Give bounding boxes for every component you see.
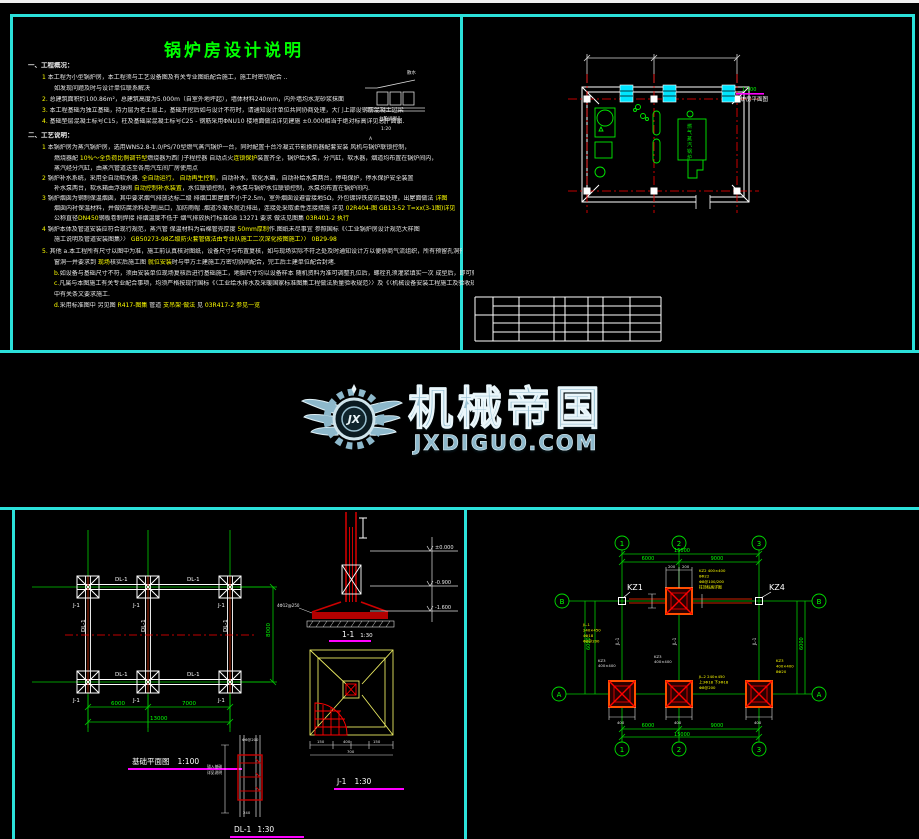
white-col-tags: KZ3400×400 KZ3400×400: [598, 654, 672, 668]
svg-text:JL-1: JL-1: [615, 637, 620, 646]
svg-text:J-1: J-1: [217, 603, 225, 609]
dim-13000: 13000: [150, 716, 168, 722]
vertical-beam-tags: JL-1 JL-1 JL-1: [615, 637, 757, 646]
foundation-panel: 6000 7000 13000 8000 DL-1DL-1 DL-1DL-1 D…: [15, 510, 464, 839]
annotation-jl1: JL-1240×4504Φ18Φ8@200: [582, 622, 601, 644]
notes-line: 中有关条文要求施工.: [54, 291, 110, 298]
dim-6000: 6000: [111, 701, 125, 707]
svg-text:150: 150: [373, 739, 381, 744]
beam-centerlines: [65, 576, 255, 693]
svg-text:DL-1: DL-1: [81, 619, 87, 632]
dim-seg2-top: 9000: [711, 556, 724, 562]
rebar-note: 4Φ12@250: [277, 603, 300, 608]
svg-text:J-1: J-1: [72, 698, 80, 704]
elev-900: -0.900: [435, 580, 451, 586]
anchor-note-2: 详见说明: [207, 770, 222, 775]
svg-text:3: 3: [757, 540, 761, 548]
svg-text:柱顶标高详图: 柱顶标高详图: [699, 585, 722, 590]
kz1-leader: [623, 592, 630, 598]
column-plan: 123 123 BB AA 15000 6000 9000 6000 9000 …: [470, 510, 919, 839]
svg-text:DL-1: DL-1: [187, 672, 200, 678]
svg-text:200: 200: [668, 564, 676, 569]
logo-emblem: JX: [300, 376, 404, 464]
svg-text:2: 2: [677, 540, 681, 548]
annotation-jl2: JL-2 240×450上3Φ18 下3Φ18Φ8@200: [698, 674, 729, 690]
svg-text:8Φ20: 8Φ20: [776, 669, 787, 674]
svg-text:A: A: [817, 691, 822, 699]
beam-caption-underline: [230, 836, 304, 838]
notes-line: 2. 总建筑面积约100.86m²，总建筑高度为5.000m（自室外地坪起），墙…: [42, 96, 344, 103]
grid-bubbles: 123 123 BB AA: [552, 536, 826, 756]
section-caption-underline: [329, 640, 371, 642]
logo-domain-text: JXDIGUO.COM: [413, 431, 598, 455]
notes-line: 3 锅炉烟囱为钢制保温烟囱，其中要求烟气排放达标二级 排烟口距屋面不小于2.5m…: [42, 195, 447, 202]
svg-text:蒸: 蒸: [687, 135, 692, 142]
elev-1600: -1.600: [435, 605, 451, 611]
dim-seg1-top: 6000: [642, 556, 655, 562]
footing-plan-j1: 150400150 700 J-11:30: [310, 650, 404, 790]
svg-text:Φ8@200: Φ8@200: [699, 685, 716, 690]
svg-text:J-1: J-1: [217, 698, 225, 704]
svg-text:JL-1: JL-1: [582, 622, 591, 627]
grid-axes: [566, 550, 812, 742]
svg-text:DL-1: DL-1: [187, 577, 200, 583]
svg-text:400×400: 400×400: [776, 664, 794, 669]
svg-text:400: 400: [617, 720, 625, 725]
frame-columns: [609, 588, 772, 707]
inset-mark: A: [369, 136, 373, 142]
footing-columns: [77, 576, 241, 693]
svg-text:A: A: [557, 691, 562, 699]
notes-line: 2 锅炉补水系统，采用全自动软水器. 全自动运行， 自动再生控制，自动补水，软化…: [42, 175, 414, 182]
notes-line: 公称直径DN450钢板卷制焊接 排烟温度不低于 烟气排放执行标准GB 13271…: [54, 215, 349, 222]
svg-text:Φ8@200: Φ8@200: [583, 639, 600, 644]
notes-section-heading: 二、工艺说明：: [28, 132, 74, 139]
notes-line: 窗洞一并要求到 现场核实后施工图 就位安装时与甲方土建施工方密切协同配合，完工后…: [54, 259, 336, 266]
dim-8000: 8000: [266, 623, 272, 637]
kz4-label: KZ4: [769, 583, 785, 592]
svg-text:Φ8@100/200: Φ8@100/200: [699, 579, 725, 584]
dim-vert-right: 6000: [799, 637, 805, 650]
svg-text:上3Φ18 下3Φ18: 上3Φ18 下3Φ18: [699, 680, 729, 685]
plan-label-underline: [736, 93, 764, 95]
svg-text:400: 400: [754, 720, 762, 725]
beam-caption: DL-11:30: [234, 825, 274, 834]
notes-line: 施工说明及管道安装图集〉〉 GB50273-98乙级防火套管做法由专业队施工二次…: [54, 236, 337, 243]
svg-text:J-1: J-1: [72, 603, 80, 609]
plan-dimension-lines: [584, 54, 740, 83]
annotation-kz3: KZ3400×4008Φ20: [776, 658, 794, 674]
svg-text:气: 气: [687, 129, 692, 136]
notes-line: 蒸汽经分汽缸，由蒸汽管道送至各用汽车间厂房使用点: [54, 165, 198, 172]
svg-text:燃: 燃: [687, 123, 692, 130]
svg-text:700: 700: [347, 749, 355, 754]
section-1-1: 4Φ12@250 ±0.000 -0.900 -1.600 1-11:30: [277, 512, 458, 642]
notes-line: b.如设备与基础尺寸不符，须由安装单位现场复核后进行基础施工，地脚尺寸均以设备样…: [54, 270, 474, 277]
anchor-note-1: 锚入基础: [207, 764, 222, 769]
window-symbols: [620, 85, 735, 102]
notes-line: 3. 本工程基础为独立基础，持力层为老土层上，基础开挖后如与设计不符时，请通知设…: [42, 107, 404, 114]
svg-text:1: 1: [620, 540, 624, 548]
top-strip: [0, 0, 919, 3]
svg-text:1: 1: [620, 746, 624, 754]
svg-text:DL-1: DL-1: [223, 619, 229, 632]
beam-detail: Φ6@200 锚入基础 详见说明 240 DL-11:30: [207, 735, 304, 838]
dim-7000: 7000: [182, 701, 196, 707]
svg-text:400: 400: [343, 739, 351, 744]
svg-text:J-1: J-1: [132, 603, 140, 609]
inset-caption: 台阶详图: [379, 115, 397, 122]
spec-table: [475, 297, 661, 341]
notes-line: 1 本工程为小型锅炉房，本工程须与工艺设备图及有关专业图纸配合施工，施工时密切配…: [42, 74, 287, 81]
svg-text:4Φ18: 4Φ18: [583, 633, 594, 638]
svg-text:JL-1: JL-1: [752, 637, 757, 646]
dim-total-top: 15000: [674, 548, 690, 554]
svg-text:400: 400: [674, 720, 682, 725]
inset-note: 散水: [407, 69, 416, 76]
svg-text:8Φ22: 8Φ22: [699, 574, 710, 579]
logo-monogram: JX: [346, 413, 361, 426]
plan-title-label: 锅炉房平面图: [735, 95, 769, 103]
svg-text:B: B: [560, 598, 565, 606]
logo-brand-text: 机械帝国: [408, 385, 604, 433]
svg-text:JL-2 240×450: JL-2 240×450: [698, 674, 725, 679]
notes-line: 5. 其他 a.本工程所有尺寸以图中为准，施工前认真核对图纸，设备尺寸与布置复核…: [42, 248, 462, 255]
notes-line: 烟囱内衬保温材料，并做防腐涂料处理|出口，加防雨帽 .烟道冷凝水就近排出，连接处…: [54, 205, 455, 212]
svg-text:JL-1: JL-1: [672, 637, 677, 646]
svg-text:炉: 炉: [687, 154, 692, 161]
kz4-leader: [761, 592, 771, 598]
svg-text:400×400: 400×400: [598, 663, 616, 668]
inset-detail-drawing: 散水 台阶详图 1:20 A: [355, 58, 465, 148]
svg-text:汽: 汽: [687, 142, 692, 149]
notes-section-heading: 一、工程概况：: [28, 62, 74, 69]
notes-line: 如发现问题及时与设计单位联系解决: [54, 85, 150, 92]
foundation-caption: 基础平面图1:100: [132, 756, 199, 766]
notes-line: 4. 基础垫层混凝土标号C15，柱及基础梁混凝土标号C25 - 钢筋采用ΦNU1…: [42, 118, 404, 125]
section-caption: 1-11:30: [342, 630, 373, 639]
kz1-label: KZ1: [627, 583, 643, 592]
footing-caption: J-11:30: [336, 777, 372, 786]
cad-sheet: 锅炉房设计说明 一、工程概况：1 本工程为小型锅炉房，本工程须与工艺设备图及有关…: [0, 0, 919, 839]
foundation-axes: [32, 530, 277, 732]
plan-walls: [582, 87, 749, 202]
dim-seg1-bot: 6000: [642, 723, 655, 729]
svg-text:B: B: [817, 598, 822, 606]
dim-seg2-bot: 9000: [711, 723, 724, 729]
notes-line: c.凡属与本图施工有关专业配合事项，均须严格按现行国标《〈工业给水排水及采暖国家…: [54, 280, 474, 287]
svg-text:150: 150: [317, 739, 325, 744]
notes-line: 补水泵两台，软水箱由浮球阀 自动控制补水装置，水位联锁控制，补水泵与锅炉水位联锁…: [54, 185, 370, 192]
elev-0: ±0.000: [435, 545, 454, 551]
footing-caption-underline: [334, 788, 404, 790]
notes-line: d.采用标准图中 另见图 R417-图集 管道 支吊架·做法 见 03R417-…: [54, 302, 260, 309]
svg-text:240×450: 240×450: [583, 628, 601, 633]
cursor-ibeam: [359, 518, 367, 538]
stirrup-note: Φ6@200: [242, 737, 259, 742]
svg-text:2: 2: [677, 746, 681, 754]
svg-text:200: 200: [682, 564, 690, 569]
svg-text:KZ3: KZ3: [776, 658, 784, 663]
notes-line: 燃烧器配 10%～全负荷比例调节型燃烧器为西门子程控器 自动点火连锁保护装置齐全…: [54, 155, 437, 162]
plan-scale-label: 1:100: [742, 87, 756, 93]
boiler-label: 燃气蒸汽锅炉: [687, 123, 692, 161]
notes-line: 4 锅炉本体及管道安装应符合现行规范，蒸汽管 保温材料为岩棉管壳厚度 50mm厚…: [42, 226, 420, 233]
svg-text:J-1: J-1: [132, 698, 140, 704]
svg-text:DL-1: DL-1: [115, 672, 128, 678]
inset-scale: 1:20: [381, 126, 391, 132]
beam-width: 240: [243, 810, 251, 815]
svg-text:400×400: 400×400: [654, 659, 672, 664]
design-notes-panel: 锅炉房设计说明 一、工程概况：1 本工程为小型锅炉房，本工程须与工艺设备图及有关…: [10, 14, 458, 352]
annotation-kz2: KZ2 400×4008Φ22Φ8@100/200柱顶标高详图: [699, 568, 726, 590]
svg-text:KZ2 400×400: KZ2 400×400: [699, 568, 726, 573]
frame-divider-bottom: [464, 507, 467, 839]
dim-total-bot: 15000: [674, 732, 690, 738]
floor-plan: 燃气蒸汽锅炉 1:100 锅炉房平面图: [463, 17, 915, 350]
svg-text:锅: 锅: [687, 148, 692, 155]
svg-text:DL-1: DL-1: [141, 619, 147, 632]
door-opening: [696, 195, 710, 205]
watermark-logo: JX 机械帝国 JXDIGUO.COM: [300, 374, 640, 466]
svg-text:3: 3: [757, 746, 761, 754]
svg-text:DL-1: DL-1: [115, 577, 128, 583]
